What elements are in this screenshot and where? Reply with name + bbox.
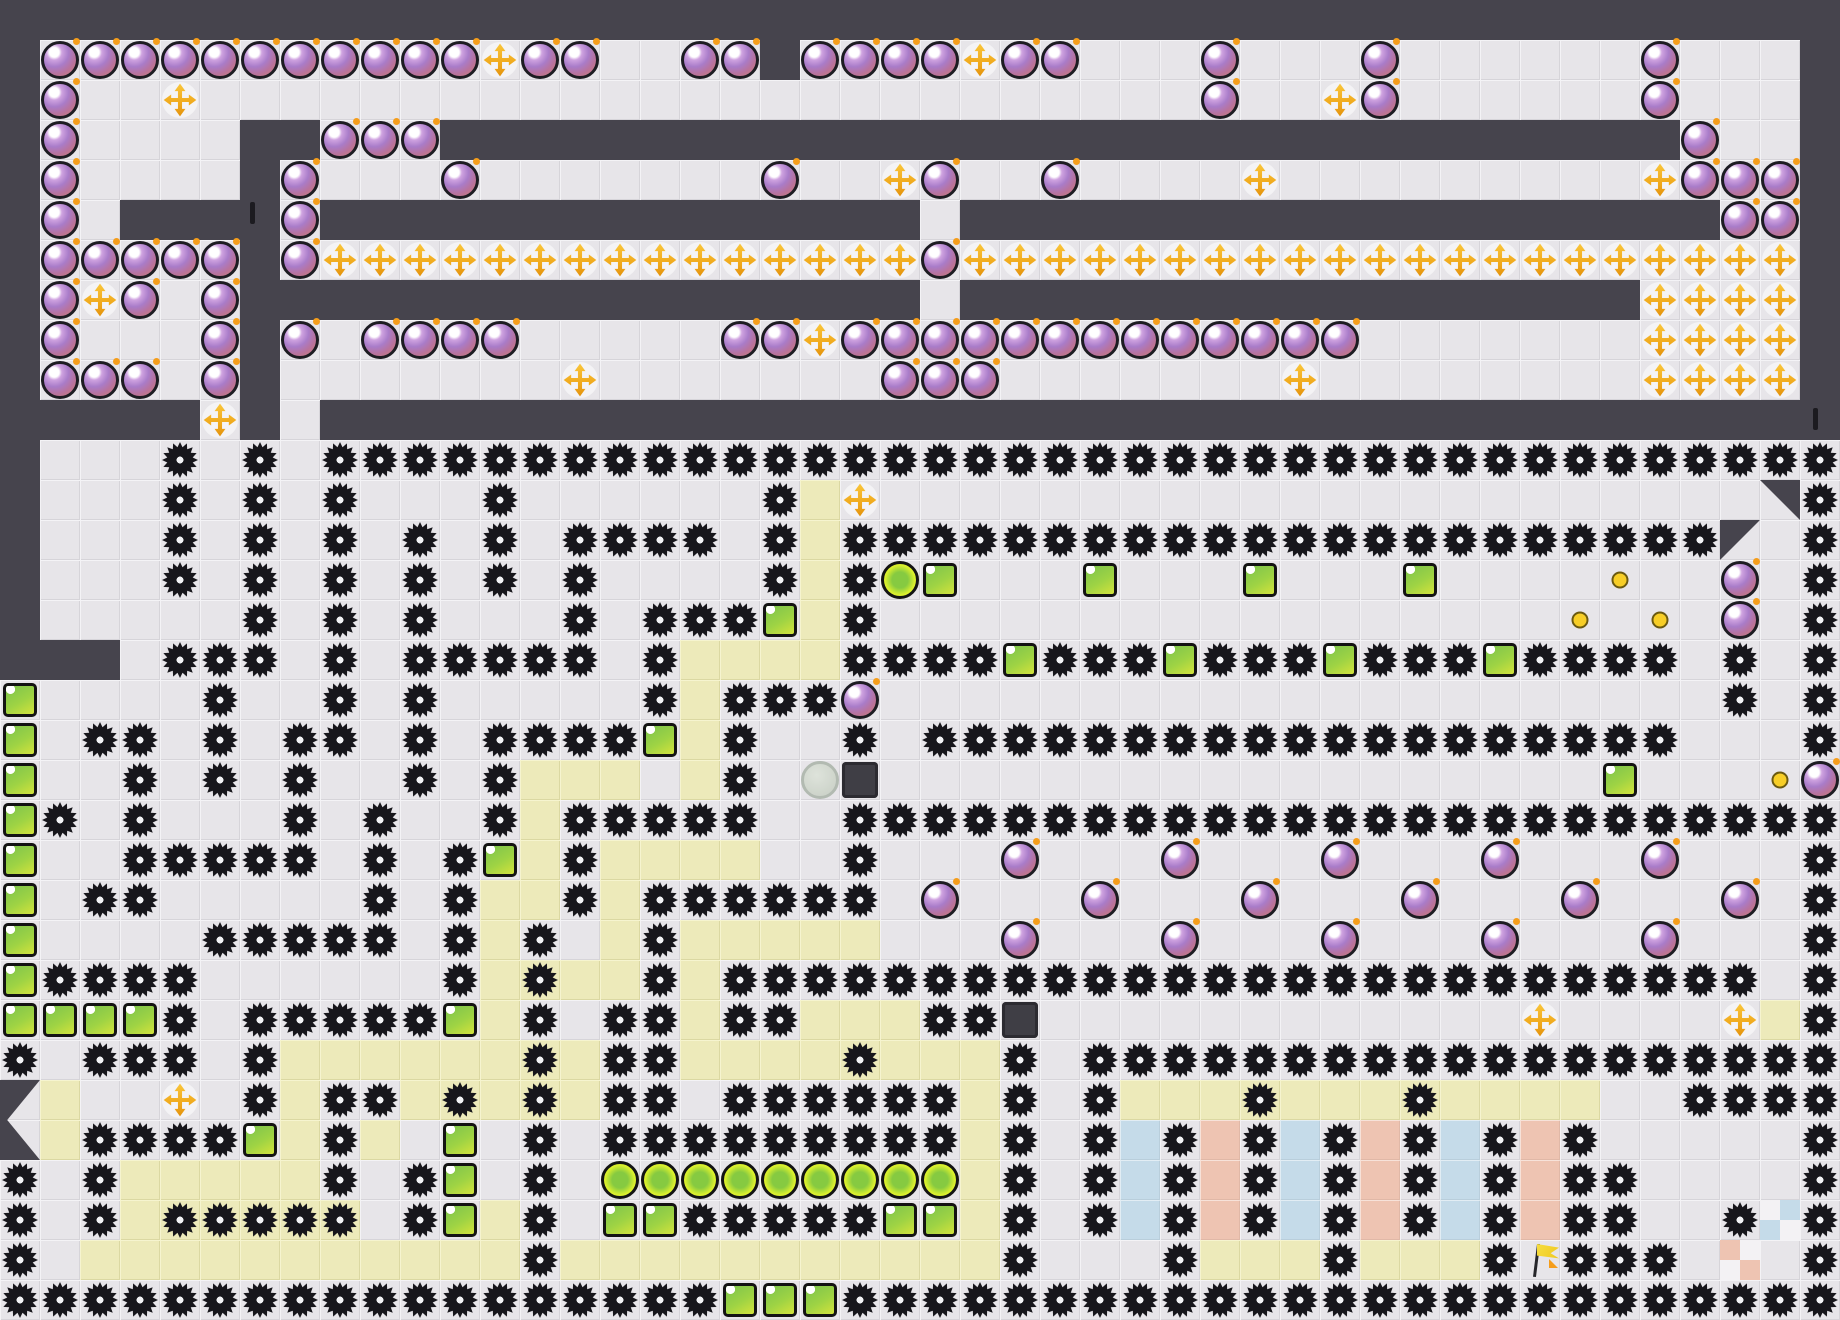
bomb[interactable] [920, 880, 960, 920]
gear-mine[interactable] [1560, 1200, 1600, 1240]
gear-mine[interactable] [1240, 520, 1280, 560]
gear-mine[interactable] [1160, 1160, 1200, 1200]
gear-mine-on-path[interactable] [1240, 1080, 1280, 1120]
bomb[interactable] [920, 40, 960, 80]
gear-mine[interactable] [1680, 960, 1720, 1000]
gear-mine[interactable] [1800, 680, 1840, 720]
gear-mine[interactable] [1120, 720, 1160, 760]
powerup-cross[interactable] [480, 240, 520, 280]
gear-mine[interactable] [1080, 440, 1120, 480]
gear-mine[interactable] [1240, 720, 1280, 760]
powerup-cross[interactable] [760, 240, 800, 280]
gear-mine[interactable] [600, 1120, 640, 1160]
powerup-cross[interactable] [1000, 240, 1040, 280]
gear-mine[interactable] [760, 960, 800, 1000]
bomb[interactable] [520, 40, 560, 80]
gear-mine[interactable] [80, 880, 120, 920]
bomb[interactable] [880, 40, 920, 80]
gear-mine[interactable] [160, 440, 200, 480]
green-block[interactable] [240, 1120, 280, 1160]
gear-mine[interactable] [40, 1280, 80, 1320]
coin[interactable] [1640, 600, 1680, 640]
gear-mine[interactable] [1200, 1040, 1240, 1080]
gear-mine[interactable] [120, 1280, 160, 1320]
gear-mine[interactable] [320, 440, 360, 480]
gear-mine[interactable] [160, 1000, 200, 1040]
gear-mine[interactable] [1560, 1160, 1600, 1200]
gear-mine[interactable] [1040, 640, 1080, 680]
gear-mine[interactable] [800, 1120, 840, 1160]
gear-mine[interactable] [1280, 1040, 1320, 1080]
gear-mine-on-path[interactable] [160, 1200, 200, 1240]
gear-mine[interactable] [1320, 440, 1360, 480]
gear-mine[interactable] [520, 440, 560, 480]
gear-mine[interactable] [360, 840, 400, 880]
powerup-cross[interactable] [1200, 240, 1240, 280]
gear-mine[interactable] [1640, 1040, 1680, 1080]
powerup-cross[interactable] [1760, 280, 1800, 320]
gear-mine[interactable] [1440, 1280, 1480, 1320]
bomb[interactable] [1480, 840, 1520, 880]
gear-mine[interactable] [800, 1080, 840, 1120]
gear-mine[interactable] [1800, 1200, 1840, 1240]
gear-mine[interactable] [1480, 1040, 1520, 1080]
gear-mine[interactable] [1320, 1280, 1360, 1320]
bomb[interactable] [200, 360, 240, 400]
gear-mine[interactable] [160, 840, 200, 880]
bomb[interactable] [1640, 840, 1680, 880]
gear-mine[interactable] [1400, 1120, 1440, 1160]
gear-mine[interactable] [1080, 1120, 1120, 1160]
gear-mine[interactable] [1480, 1120, 1520, 1160]
powerup-cross[interactable] [320, 240, 360, 280]
bomb[interactable] [1320, 840, 1360, 880]
gear-mine[interactable] [120, 800, 160, 840]
gear-mine[interactable] [200, 720, 240, 760]
gear-mine[interactable] [1000, 1080, 1040, 1120]
gear-mine[interactable] [1720, 960, 1760, 1000]
powerup-cross[interactable] [720, 240, 760, 280]
gear-mine[interactable] [640, 920, 680, 960]
gear-mine[interactable] [560, 520, 600, 560]
gear-mine[interactable] [1560, 440, 1600, 480]
gear-mine[interactable] [600, 520, 640, 560]
gear-mine[interactable] [520, 720, 560, 760]
bomb[interactable] [40, 200, 80, 240]
powerup-cross[interactable] [1760, 320, 1800, 360]
gear-mine[interactable] [960, 1000, 1000, 1040]
bomb[interactable] [160, 240, 200, 280]
gear-mine[interactable] [760, 880, 800, 920]
gear-mine[interactable] [720, 880, 760, 920]
gear-mine[interactable] [920, 1080, 960, 1120]
gear-mine[interactable] [1600, 1240, 1640, 1280]
gear-mine[interactable] [640, 1000, 680, 1040]
gear-mine[interactable] [520, 1160, 560, 1200]
green-block[interactable] [640, 1200, 680, 1240]
powerup-cross[interactable] [1320, 240, 1360, 280]
gear-mine[interactable] [360, 920, 400, 960]
gear-mine[interactable] [80, 1160, 120, 1200]
gear-mine[interactable] [1480, 520, 1520, 560]
gear-mine[interactable] [1240, 640, 1280, 680]
gear-mine[interactable] [920, 1280, 960, 1320]
gear-mine[interactable] [1800, 440, 1840, 480]
bomb[interactable] [960, 360, 1000, 400]
gear-mine[interactable] [640, 600, 680, 640]
gear-mine[interactable] [440, 880, 480, 920]
gear-mine[interactable] [720, 440, 760, 480]
gear-mine[interactable] [680, 1280, 720, 1320]
gear-mine[interactable] [1800, 1080, 1840, 1120]
gear-mine[interactable] [640, 800, 680, 840]
gear-mine[interactable] [200, 1280, 240, 1320]
gear-mine[interactable] [160, 1280, 200, 1320]
gear-mine[interactable] [1520, 1280, 1560, 1320]
orb[interactable] [920, 1160, 960, 1200]
powerup-cross[interactable] [1280, 240, 1320, 280]
bomb[interactable] [400, 120, 440, 160]
gear-mine[interactable] [1800, 600, 1840, 640]
gear-mine[interactable] [1440, 1040, 1480, 1080]
gear-mine[interactable] [600, 1040, 640, 1080]
bomb[interactable] [1080, 880, 1120, 920]
powerup-cross[interactable] [1680, 240, 1720, 280]
bomb[interactable] [280, 40, 320, 80]
gear-mine[interactable] [320, 640, 360, 680]
gear-mine[interactable] [1240, 440, 1280, 480]
green-block[interactable] [440, 1200, 480, 1240]
gear-mine[interactable] [280, 1000, 320, 1040]
green-block[interactable] [0, 800, 40, 840]
green-block[interactable] [760, 600, 800, 640]
gear-mine[interactable] [0, 1200, 40, 1240]
gear-mine[interactable] [1000, 1280, 1040, 1320]
gear-mine[interactable] [1320, 1160, 1360, 1200]
gear-mine[interactable] [80, 720, 120, 760]
bomb[interactable] [120, 280, 160, 320]
gear-mine[interactable] [200, 760, 240, 800]
gear-mine[interactable] [1000, 1040, 1040, 1080]
gear-mine[interactable] [1560, 1240, 1600, 1280]
gear-mine[interactable] [440, 1280, 480, 1320]
gear-mine[interactable] [840, 800, 880, 840]
gear-mine[interactable] [560, 440, 600, 480]
gear-mine[interactable] [1680, 1280, 1720, 1320]
gear-mine[interactable] [1800, 560, 1840, 600]
gear-mine[interactable] [320, 560, 360, 600]
orb[interactable] [680, 1160, 720, 1200]
gear-mine[interactable] [520, 1200, 560, 1240]
gear-mine[interactable] [240, 840, 280, 880]
bomb[interactable] [1240, 320, 1280, 360]
bomb[interactable] [1640, 920, 1680, 960]
bomb[interactable] [1160, 840, 1200, 880]
gear-mine[interactable] [1400, 1280, 1440, 1320]
bomb[interactable] [200, 280, 240, 320]
gear-mine[interactable] [1000, 1120, 1040, 1160]
gear-mine[interactable] [1440, 800, 1480, 840]
gear-mine[interactable] [1120, 640, 1160, 680]
gear-mine[interactable] [920, 800, 960, 840]
bomb[interactable] [1760, 200, 1800, 240]
powerup-cross[interactable] [880, 160, 920, 200]
gear-mine[interactable] [560, 800, 600, 840]
gear-mine[interactable] [1160, 520, 1200, 560]
gear-mine[interactable] [1600, 640, 1640, 680]
gear-mine[interactable] [480, 480, 520, 520]
gear-mine[interactable] [1400, 1160, 1440, 1200]
gear-mine[interactable] [1400, 720, 1440, 760]
bomb[interactable] [1320, 320, 1360, 360]
green-block[interactable] [0, 680, 40, 720]
bomb[interactable] [40, 40, 80, 80]
bomb[interactable] [680, 40, 720, 80]
gear-mine[interactable] [640, 440, 680, 480]
green-block[interactable] [1000, 640, 1040, 680]
bomb[interactable] [1680, 160, 1720, 200]
gear-mine[interactable] [1200, 520, 1240, 560]
gear-mine[interactable] [1680, 520, 1720, 560]
gear-mine[interactable] [680, 520, 720, 560]
powerup-cross[interactable] [1040, 240, 1080, 280]
gear-mine[interactable] [720, 1200, 760, 1240]
orb[interactable] [880, 1160, 920, 1200]
gear-mine[interactable] [720, 1000, 760, 1040]
bomb[interactable] [1200, 320, 1240, 360]
bomb[interactable] [120, 40, 160, 80]
green-block[interactable] [0, 1000, 40, 1040]
bomb[interactable] [1160, 320, 1200, 360]
gear-mine[interactable] [840, 560, 880, 600]
gear-mine[interactable] [1800, 960, 1840, 1000]
gear-mine[interactable] [1400, 800, 1440, 840]
gear-mine[interactable] [1480, 960, 1520, 1000]
gear-mine-on-path[interactable] [1400, 1080, 1440, 1120]
bomb[interactable] [1360, 40, 1400, 80]
gear-mine[interactable] [480, 800, 520, 840]
gear-mine[interactable] [960, 440, 1000, 480]
gear-mine[interactable] [760, 440, 800, 480]
gear-mine[interactable] [560, 720, 600, 760]
gear-mine[interactable] [640, 960, 680, 1000]
gear-mine[interactable] [1600, 1040, 1640, 1080]
gear-mine[interactable] [200, 840, 240, 880]
green-block[interactable] [1480, 640, 1520, 680]
orb[interactable] [800, 1160, 840, 1200]
gear-mine[interactable] [560, 840, 600, 880]
bomb[interactable] [1560, 880, 1600, 920]
bomb[interactable] [440, 160, 480, 200]
gear-mine[interactable] [840, 840, 880, 880]
green-block[interactable] [40, 1000, 80, 1040]
gear-mine[interactable] [600, 440, 640, 480]
green-block[interactable] [0, 880, 40, 920]
gear-mine[interactable] [1720, 440, 1760, 480]
gear-mine[interactable] [400, 440, 440, 480]
gear-mine[interactable] [400, 720, 440, 760]
gear-mine[interactable] [1480, 1280, 1520, 1320]
gear-mine[interactable] [1120, 1280, 1160, 1320]
powerup-cross[interactable] [1720, 280, 1760, 320]
gear-mine[interactable] [680, 880, 720, 920]
gear-mine[interactable] [40, 800, 80, 840]
gear-mine[interactable] [680, 600, 720, 640]
gear-mine[interactable] [1480, 1200, 1520, 1240]
dark-block[interactable] [840, 760, 880, 800]
powerup-cross[interactable] [680, 240, 720, 280]
gear-mine[interactable] [240, 560, 280, 600]
gear-mine[interactable] [320, 680, 360, 720]
gear-mine-on-path[interactable] [840, 1040, 880, 1080]
powerup-cross[interactable] [160, 80, 200, 120]
gear-mine[interactable] [160, 560, 200, 600]
gear-mine[interactable] [400, 1000, 440, 1040]
powerup-cross[interactable] [1520, 240, 1560, 280]
coin[interactable] [1600, 560, 1640, 600]
gear-mine[interactable] [320, 1120, 360, 1160]
gear-mine[interactable] [1080, 1040, 1120, 1080]
gear-mine[interactable] [1560, 640, 1600, 680]
gear-mine[interactable] [160, 960, 200, 1000]
gear-mine[interactable] [1440, 520, 1480, 560]
gear-mine[interactable] [1480, 720, 1520, 760]
gear-mine[interactable] [960, 640, 1000, 680]
gear-mine[interactable] [360, 1280, 400, 1320]
gear-mine[interactable] [520, 640, 560, 680]
gear-mine[interactable] [240, 1280, 280, 1320]
powerup-cross[interactable] [480, 40, 520, 80]
bomb[interactable] [440, 40, 480, 80]
gear-mine[interactable] [680, 1120, 720, 1160]
gear-mine[interactable] [320, 1160, 360, 1200]
powerup-cross[interactable] [560, 240, 600, 280]
gear-mine[interactable] [1440, 640, 1480, 680]
gear-mine[interactable] [1240, 1200, 1280, 1240]
bomb[interactable] [320, 120, 360, 160]
powerup-cross[interactable] [1760, 360, 1800, 400]
gear-mine[interactable] [320, 1000, 360, 1040]
bomb[interactable] [760, 160, 800, 200]
gear-mine[interactable] [1800, 840, 1840, 880]
powerup-cross[interactable] [1640, 320, 1680, 360]
gear-mine[interactable] [1200, 720, 1240, 760]
bomb[interactable] [1720, 560, 1760, 600]
gear-mine[interactable] [720, 760, 760, 800]
powerup-cross[interactable] [1720, 320, 1760, 360]
gear-mine[interactable] [800, 680, 840, 720]
gear-mine[interactable] [240, 520, 280, 560]
gear-mine[interactable] [920, 440, 960, 480]
gear-mine[interactable] [880, 520, 920, 560]
gear-mine[interactable] [1000, 960, 1040, 1000]
gear-mine[interactable] [1200, 960, 1240, 1000]
checkpoint-flag[interactable] [1520, 1240, 1560, 1280]
gear-mine[interactable] [560, 880, 600, 920]
gear-mine[interactable] [1600, 960, 1640, 1000]
gear-mine[interactable] [1520, 520, 1560, 560]
gear-mine[interactable] [1800, 640, 1840, 680]
green-block[interactable] [440, 1000, 480, 1040]
gear-mine[interactable] [640, 1120, 680, 1160]
gear-mine[interactable] [680, 800, 720, 840]
green-block[interactable] [760, 1280, 800, 1320]
gear-mine[interactable] [1200, 800, 1240, 840]
gear-mine[interactable] [1160, 1040, 1200, 1080]
bomb[interactable] [1480, 920, 1520, 960]
gear-mine[interactable] [40, 960, 80, 1000]
green-block[interactable] [120, 1000, 160, 1040]
gear-mine[interactable] [1080, 800, 1120, 840]
gear-mine[interactable] [1640, 440, 1680, 480]
gear-mine[interactable] [1800, 520, 1840, 560]
gear-mine[interactable] [840, 1080, 880, 1120]
gear-mine[interactable] [720, 600, 760, 640]
gear-mine[interactable] [1720, 1200, 1760, 1240]
gear-mine[interactable] [1600, 720, 1640, 760]
gear-mine[interactable] [1240, 1280, 1280, 1320]
bomb[interactable] [840, 680, 880, 720]
gear-mine[interactable] [640, 880, 680, 920]
bomb[interactable] [1120, 320, 1160, 360]
gear-mine[interactable] [440, 920, 480, 960]
gear-mine[interactable] [1200, 440, 1240, 480]
powerup-cross[interactable] [200, 400, 240, 440]
orb[interactable] [840, 1160, 880, 1200]
gear-mine[interactable] [1120, 960, 1160, 1000]
gear-mine[interactable] [1040, 720, 1080, 760]
green-block[interactable] [0, 840, 40, 880]
gear-mine[interactable] [200, 680, 240, 720]
gear-mine[interactable] [640, 680, 680, 720]
gear-mine[interactable] [1120, 440, 1160, 480]
powerup-cross[interactable] [800, 240, 840, 280]
gear-mine[interactable] [1720, 640, 1760, 680]
bomb[interactable] [120, 360, 160, 400]
gear-mine[interactable] [1240, 960, 1280, 1000]
gear-mine[interactable] [760, 680, 800, 720]
gear-mine[interactable] [120, 880, 160, 920]
bomb[interactable] [1400, 880, 1440, 920]
bomb[interactable] [400, 40, 440, 80]
gear-mine[interactable] [600, 1000, 640, 1040]
gear-mine[interactable] [440, 440, 480, 480]
gear-mine[interactable] [400, 640, 440, 680]
bomb[interactable] [880, 320, 920, 360]
gear-mine[interactable] [1600, 520, 1640, 560]
gear-mine[interactable] [1800, 880, 1840, 920]
powerup-cross[interactable] [1640, 240, 1680, 280]
bomb[interactable] [40, 160, 80, 200]
gear-mine[interactable] [560, 600, 600, 640]
gear-mine[interactable] [360, 440, 400, 480]
gear-mine[interactable] [1160, 800, 1200, 840]
gear-mine[interactable] [1520, 960, 1560, 1000]
powerup-cross[interactable] [1720, 360, 1760, 400]
gear-mine[interactable] [240, 1080, 280, 1120]
gear-mine[interactable] [240, 600, 280, 640]
gear-mine[interactable] [1800, 1000, 1840, 1040]
gear-mine[interactable] [1520, 1040, 1560, 1080]
gear-mine[interactable] [800, 1200, 840, 1240]
powerup-cross[interactable] [1560, 240, 1600, 280]
gear-mine[interactable] [920, 960, 960, 1000]
gear-mine[interactable] [1120, 800, 1160, 840]
gear-mine[interactable] [160, 1120, 200, 1160]
bomb[interactable] [1800, 760, 1840, 800]
gear-mine[interactable] [1400, 1040, 1440, 1080]
green-block[interactable] [720, 1280, 760, 1320]
